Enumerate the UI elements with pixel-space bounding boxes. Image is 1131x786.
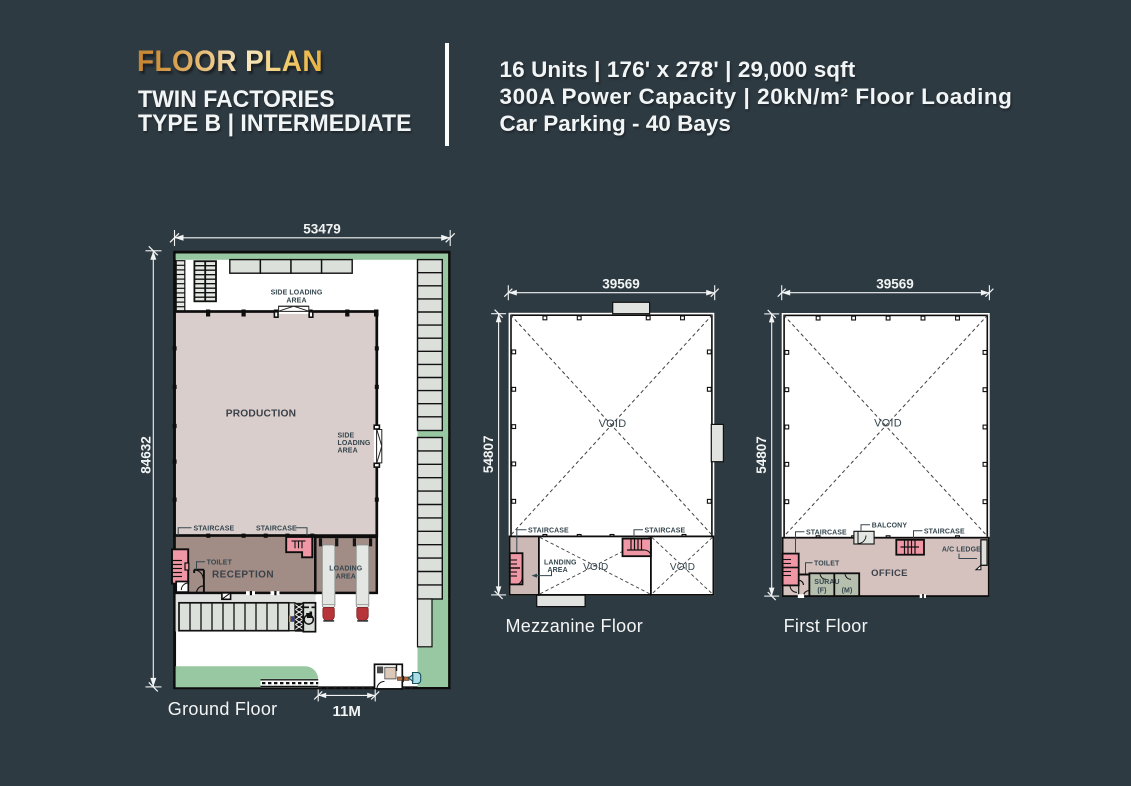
svg-text:STAIRCASE: STAIRCASE	[528, 527, 569, 534]
svg-text:(M): (M)	[842, 588, 853, 595]
svg-text:RECEPTION: RECEPTION	[212, 570, 274, 581]
svg-text:STAIRCASE: STAIRCASE	[256, 526, 297, 533]
svg-text:53479: 53479	[303, 222, 341, 237]
svg-text:STAIRCASE: STAIRCASE	[645, 527, 686, 534]
svg-text:11M: 11M	[333, 703, 361, 720]
svg-text:(F): (F)	[817, 588, 826, 595]
svg-text:SURAU: SURAU	[814, 579, 839, 586]
svg-text:A/C LEDGE: A/C LEDGE	[942, 547, 981, 554]
svg-text:AREA: AREA	[338, 448, 358, 455]
svg-text:AREA: AREA	[286, 298, 306, 305]
svg-text:LANDING: LANDING	[544, 560, 577, 567]
svg-text:84632: 84632	[139, 436, 154, 474]
svg-text:54807: 54807	[481, 436, 496, 474]
svg-text:VOID: VOID	[670, 562, 695, 573]
svg-text:LOADING: LOADING	[329, 566, 362, 573]
svg-text:STAIRCASE: STAIRCASE	[194, 526, 235, 533]
svg-text:VOID: VOID	[599, 418, 627, 430]
svg-text:54807: 54807	[754, 436, 769, 474]
svg-text:PRODUCTION: PRODUCTION	[226, 409, 296, 420]
svg-text:VOID: VOID	[874, 418, 902, 430]
svg-text:First Floor: First Floor	[784, 616, 868, 636]
svg-text:TOILET: TOILET	[814, 561, 840, 568]
svg-text:STAIRCASE: STAIRCASE	[924, 528, 965, 535]
svg-text:SIDE: SIDE	[338, 433, 355, 440]
svg-text:OFFICE: OFFICE	[871, 568, 908, 579]
svg-text:LOADING: LOADING	[338, 440, 371, 447]
svg-text:39569: 39569	[602, 277, 640, 292]
svg-text:BALCONY: BALCONY	[872, 523, 908, 530]
svg-text:AREA: AREA	[548, 567, 568, 574]
svg-text:TOILET: TOILET	[207, 560, 233, 567]
svg-text:VOID: VOID	[583, 562, 608, 573]
svg-text:39569: 39569	[876, 277, 914, 292]
svg-text:Ground Floor: Ground Floor	[168, 699, 278, 719]
svg-text:STAIRCASE: STAIRCASE	[806, 529, 847, 536]
svg-text:SIDE LOADING: SIDE LOADING	[271, 290, 323, 297]
svg-text:Mezzanine Floor: Mezzanine Floor	[506, 616, 644, 636]
svg-text:AREA: AREA	[336, 574, 356, 581]
